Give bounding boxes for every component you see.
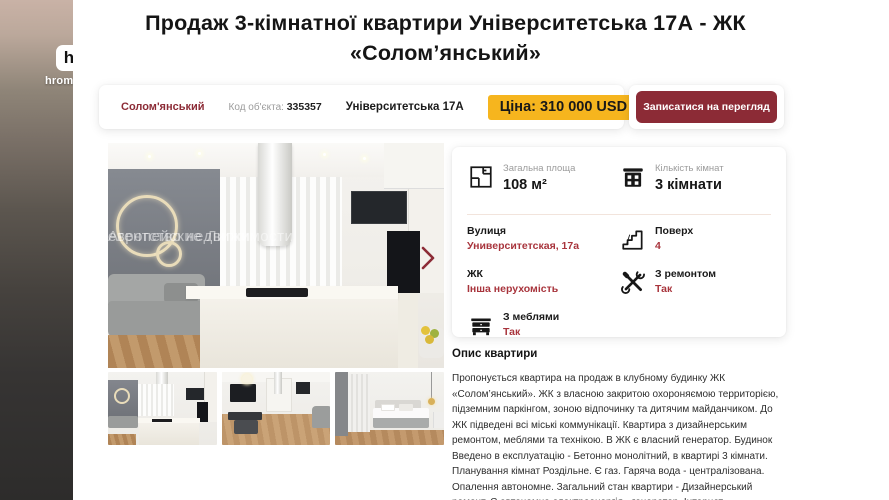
- ceiling-light: [198, 152, 201, 155]
- description-heading: Опис квартири: [452, 348, 537, 360]
- detail-value: Інша нерухомість: [467, 283, 558, 295]
- detail-complex: ЖК Інша нерухомість: [467, 264, 619, 307]
- price-badge: Ціна: 310 000 USD: [488, 95, 639, 120]
- detail-label: З меблями: [503, 311, 559, 323]
- photo-sofa-seat: [108, 301, 214, 337]
- photo-tv: [351, 191, 407, 224]
- book-viewing-button[interactable]: Записатися на перегляд: [636, 91, 777, 123]
- detail-value: Так: [655, 283, 716, 295]
- detail-value: 3 кімнати: [655, 177, 724, 193]
- photo-fruit: [421, 326, 430, 335]
- detail-value: Университетская, 17а: [467, 240, 579, 252]
- detail-label: Кількість кімнат: [655, 163, 724, 174]
- object-code: Код об'єкта: 335357: [229, 101, 322, 113]
- video-background-right: [818, 0, 889, 500]
- detail-label: Вулиця: [467, 225, 579, 237]
- detail-furniture: З меблями Так: [467, 307, 619, 350]
- thumbnail-2-livingroom[interactable]: [222, 372, 331, 445]
- gallery-next-button[interactable]: [415, 241, 441, 275]
- page-title-line2: «Солом’янський»: [73, 38, 818, 68]
- listing-page: Продаж 3-кімнатної квартири Університетс…: [73, 0, 818, 500]
- ceiling-light: [363, 157, 366, 160]
- detail-street: Вулиця Университетская, 17а: [467, 221, 619, 264]
- ceiling-light: [148, 155, 151, 158]
- agency-watermark-line2: европейские Липки: [108, 227, 251, 246]
- photo-cooktop: [246, 288, 308, 297]
- floorplan-icon: [467, 163, 494, 190]
- photo-island-front: [200, 299, 398, 368]
- address-badge: Університетська 17А: [346, 101, 464, 113]
- detail-value: 4: [655, 240, 693, 252]
- gallery-thumbnails: [108, 372, 444, 445]
- detail-value: 108 м²: [503, 177, 575, 193]
- detail-empty: [619, 307, 771, 350]
- photo-fruit: [425, 335, 434, 344]
- photo-upper-cabinets: [384, 143, 444, 189]
- cta-card: Записатися на перегляд: [629, 85, 784, 129]
- stairs-icon: [619, 225, 646, 252]
- gallery-main-photo[interactable]: Агентство недвижимости европейские Липки: [108, 143, 444, 368]
- object-code-value: 335357: [287, 101, 322, 113]
- property-details-card: Загальна площа 108 м² Кількість кімнат 3…: [452, 147, 786, 337]
- detail-label: З ремонтом: [655, 268, 716, 280]
- listing-meta-bar: Солом'янський Код об'єкта: 335357 Універ…: [99, 85, 624, 129]
- object-code-label: Код об'єкта:: [229, 102, 284, 113]
- detail-renovation: З ремонтом Так: [619, 264, 771, 307]
- description-text: Пропонується квартира на продаж в клубно…: [452, 371, 789, 500]
- detail-rooms: Кількість кімнат 3 кімнати: [619, 159, 771, 205]
- furniture-icon: [467, 311, 494, 338]
- page-title-line1: Продаж 3-кімнатної квартири Університетс…: [73, 8, 818, 38]
- thumbnail-3-bedroom[interactable]: [335, 372, 444, 445]
- district-badge: Солом'янський: [121, 101, 205, 113]
- detail-floor: Поверх 4: [619, 221, 771, 264]
- photo-wood-floor: [108, 335, 204, 368]
- details-divider: [467, 214, 771, 215]
- detail-label: Поверх: [655, 225, 693, 237]
- ceiling-light: [323, 153, 326, 156]
- building-icon: [619, 163, 646, 190]
- tools-icon: [619, 268, 646, 295]
- detail-label: ЖК: [467, 268, 558, 280]
- thumbnail-1-livingroom-kitchen[interactable]: [108, 372, 217, 445]
- page-title: Продаж 3-кімнатної квартири Університетс…: [73, 8, 818, 68]
- chevron-right-icon: [417, 243, 439, 273]
- detail-value: Так: [503, 326, 559, 338]
- detail-total-area: Загальна площа 108 м²: [467, 159, 619, 205]
- detail-label: Загальна площа: [503, 163, 575, 174]
